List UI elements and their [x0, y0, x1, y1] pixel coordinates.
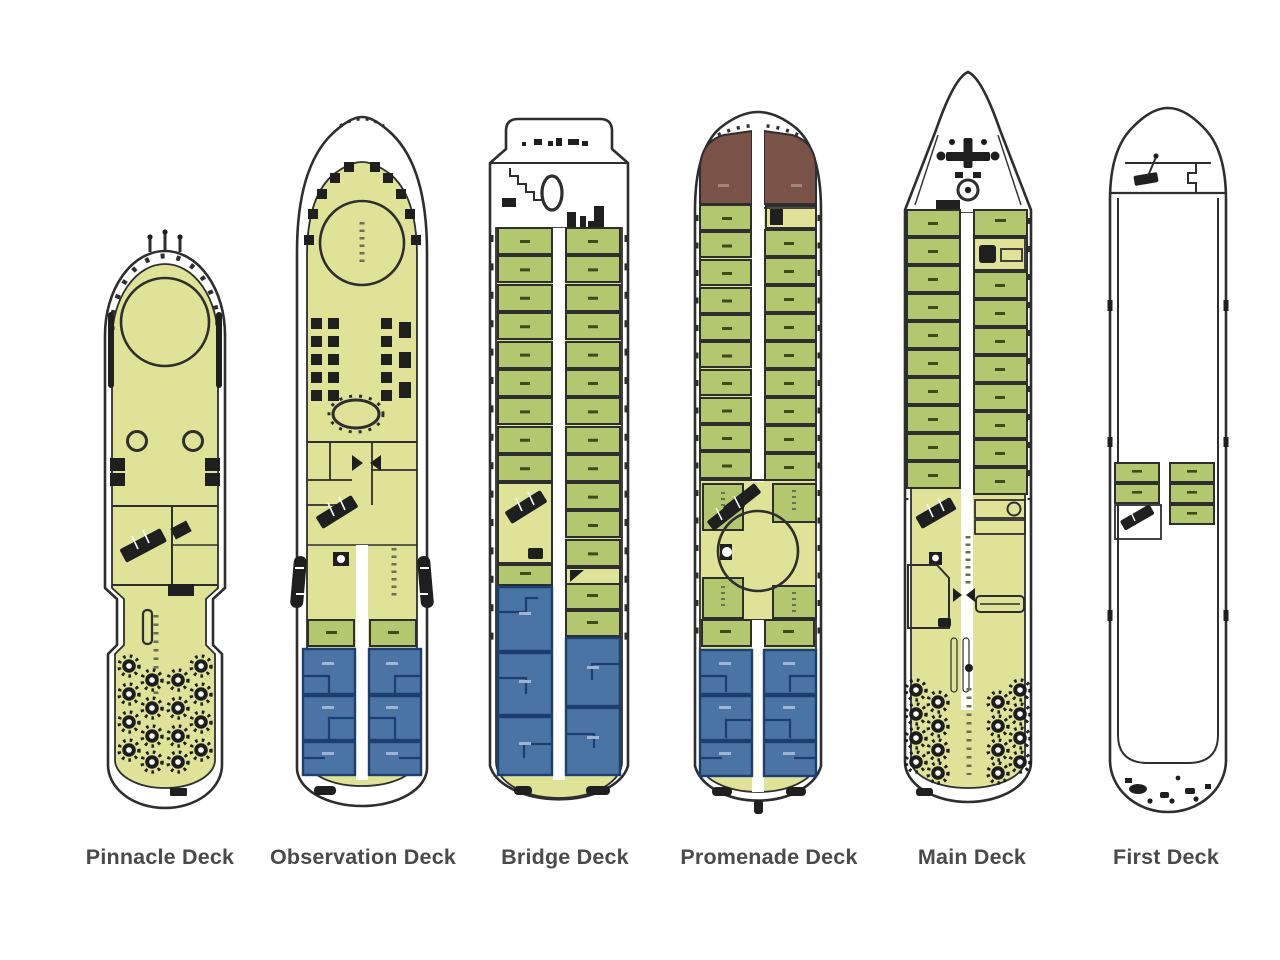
deck-plans-svg: [0, 0, 1280, 830]
corridor: [356, 545, 368, 780]
corridor: [752, 620, 764, 792]
deck-label-promenade: Promenade Deck: [680, 845, 857, 870]
deck-label-bridge: Bridge Deck: [501, 845, 629, 870]
deck-label-first: First Deck: [1113, 845, 1219, 870]
promenade-deck-plan: [695, 112, 821, 814]
pinnacle-deck-plan: [105, 229, 225, 808]
corridor: [553, 228, 565, 780]
first-deck-plan: [1108, 108, 1229, 812]
rudder-icon: [754, 800, 763, 814]
observation-deck-plan: [290, 117, 434, 806]
corridor: [752, 122, 764, 482]
deck-label-pinnacle: Pinnacle Deck: [86, 845, 234, 870]
mast-icon: [147, 229, 182, 252]
deck-label-main: Main Deck: [918, 845, 1026, 870]
deck-plan-diagram: Pinnacle Deck Observation Deck Bridge De…: [0, 0, 1280, 960]
deck-label-observation: Observation Deck: [270, 845, 456, 870]
corridor: [961, 213, 973, 710]
main-deck-plan: [905, 72, 1031, 802]
bridge-deck-plan: [490, 119, 628, 799]
